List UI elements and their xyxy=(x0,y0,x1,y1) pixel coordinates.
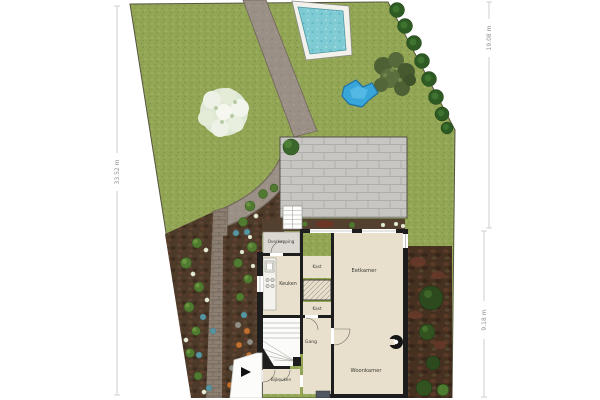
room-label-woonkamer: Woonkamer xyxy=(351,368,383,374)
house: Overkapping Keuken Kast Kast Eetkamer Ga… xyxy=(257,229,408,399)
room-label-gang: Gang xyxy=(305,339,317,345)
shaft-hatched xyxy=(303,280,331,300)
door-gap-overkapping xyxy=(270,253,283,256)
door-gap-gang xyxy=(305,315,318,318)
room-label-kast-bottom: Kast xyxy=(312,306,321,311)
driveway xyxy=(230,353,262,398)
room-label-bijkeuken: Bijkeuken xyxy=(271,377,292,382)
room-overkapping xyxy=(263,232,300,256)
dimension-label-right-top: 19.08 m xyxy=(486,25,493,50)
room-gang xyxy=(303,318,331,394)
room-label-keuken: Keuken xyxy=(279,281,297,287)
flower-bed-right xyxy=(408,246,452,398)
room-label-overkapping: Overkapping xyxy=(268,239,295,244)
room-label-kast-top: Kast xyxy=(312,264,321,269)
dimension-label-left: 33.52 m xyxy=(114,159,121,184)
garden-floor-plan-page: Overkapping Keuken Kast Kast Eetkamer Ga… xyxy=(0,0,600,400)
terrace-bush xyxy=(283,139,299,155)
dimension-right-bottom: 9.18 m xyxy=(479,231,489,397)
garden-floor-plan: Overkapping Keuken Kast Kast Eetkamer Ga… xyxy=(0,0,600,400)
dimension-label-right-bottom: 9.18 m xyxy=(481,309,488,330)
dimension-left: 33.52 m xyxy=(112,6,122,395)
kitchen-counter xyxy=(263,258,276,310)
door-gap-bijkeuken xyxy=(300,375,303,387)
room-label-eetkamer: Eetkamer xyxy=(352,268,378,274)
fixture xyxy=(316,391,330,398)
door-gap-living xyxy=(331,328,334,344)
dimension-right-top: 19.08 m xyxy=(484,2,494,228)
exterior-stairs xyxy=(283,206,302,229)
